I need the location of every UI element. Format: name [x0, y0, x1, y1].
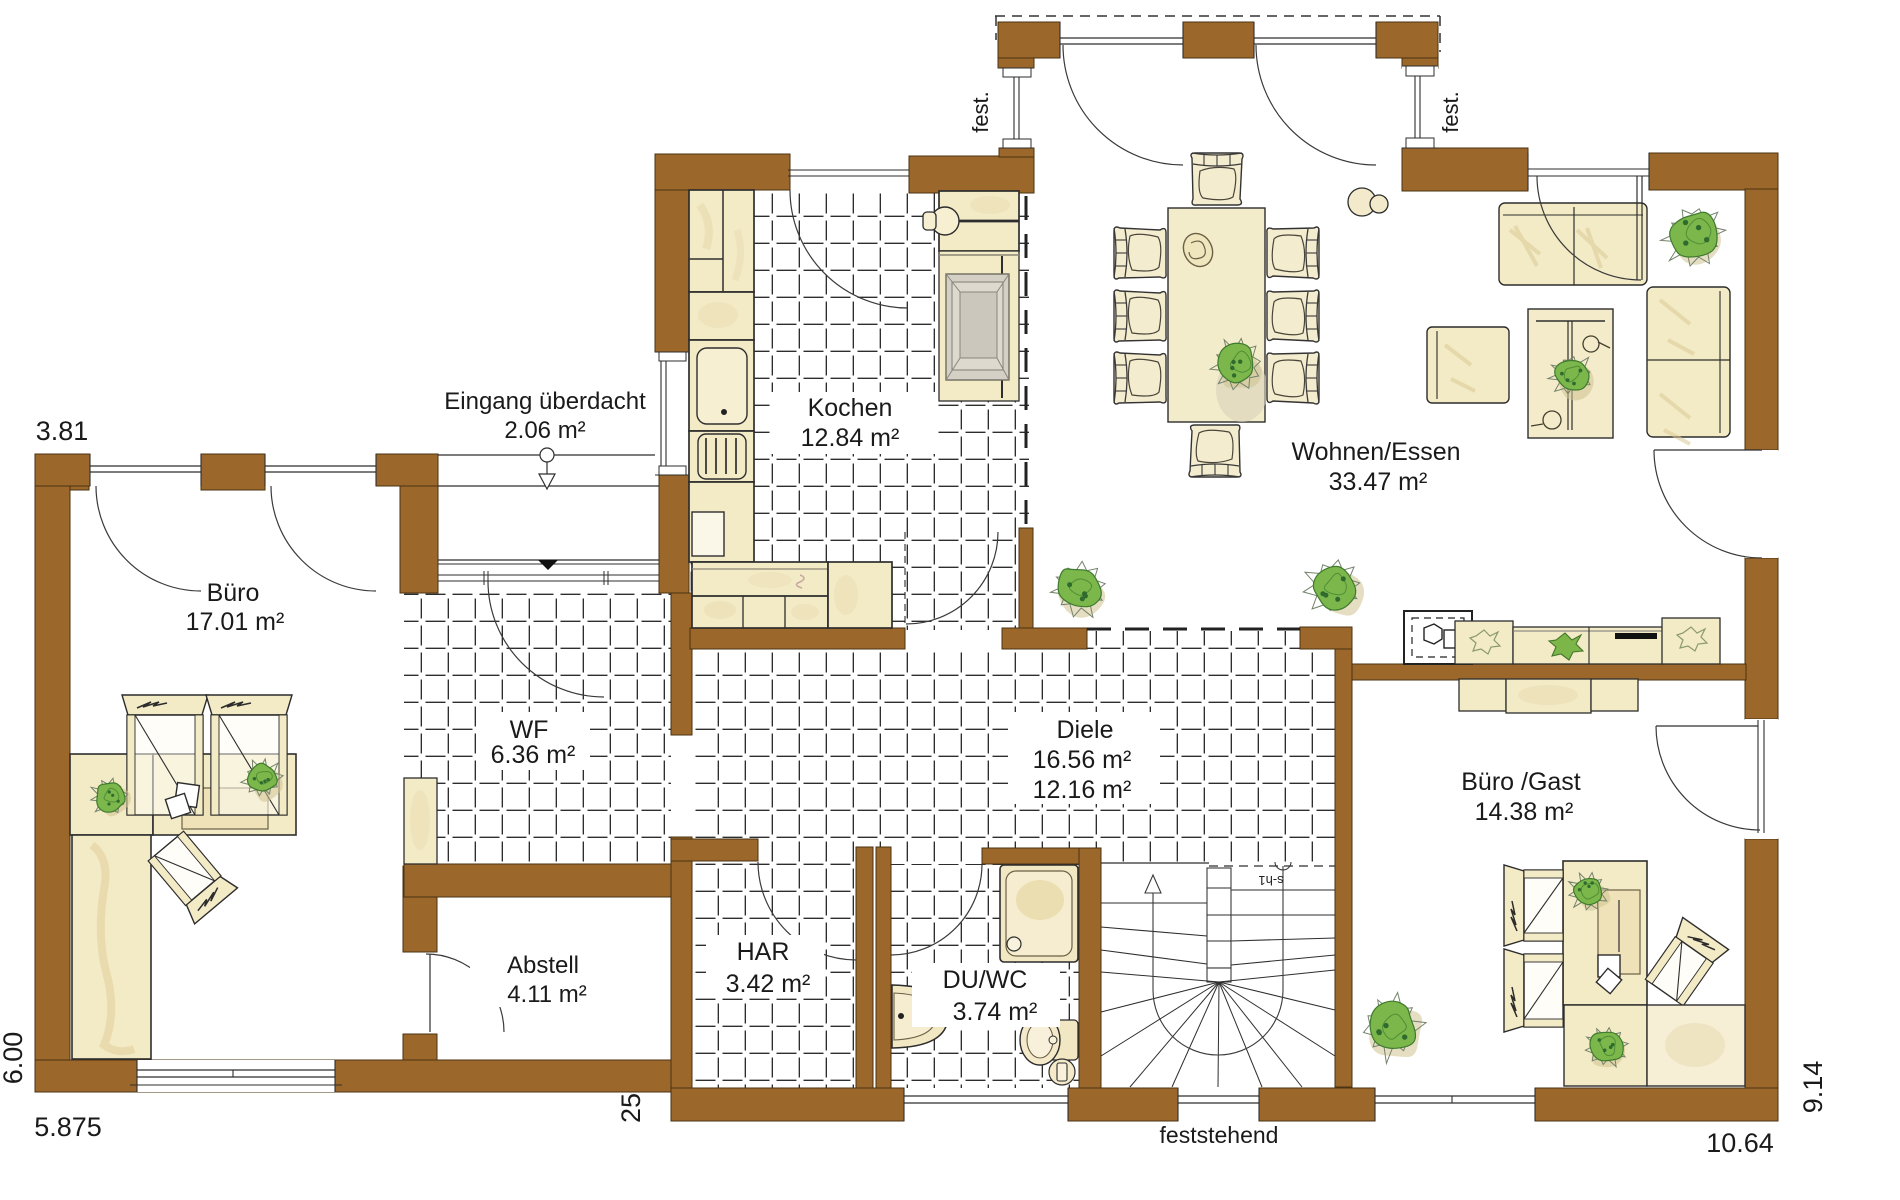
- svg-text:WF: WF: [510, 716, 549, 744]
- svg-text:Abstell: Abstell: [507, 952, 579, 979]
- svg-text:fest.: fest.: [1438, 91, 1463, 133]
- svg-text:16.56 m²: 16.56 m²: [1033, 746, 1132, 774]
- svg-text:14.38 m²: 14.38 m²: [1475, 798, 1574, 826]
- svg-text:feststehend: feststehend: [1160, 1122, 1279, 1148]
- svg-text:s-h1: s-h1: [1258, 873, 1283, 888]
- svg-text:3.74 m²: 3.74 m²: [953, 998, 1038, 1026]
- svg-text:9.14: 9.14: [1798, 1061, 1828, 1114]
- svg-text:HAR: HAR: [737, 938, 790, 966]
- svg-text:2.06 m²: 2.06 m²: [504, 417, 585, 444]
- svg-text:DU/WC: DU/WC: [943, 966, 1028, 994]
- svg-text:fest.: fest.: [968, 91, 993, 133]
- svg-text:10.64: 10.64: [1706, 1128, 1774, 1158]
- svg-text:17.01 m²: 17.01 m²: [186, 608, 285, 636]
- svg-text:3.81: 3.81: [36, 416, 89, 446]
- svg-text:Kochen: Kochen: [808, 394, 893, 422]
- svg-text:3.42 m²: 3.42 m²: [726, 970, 811, 998]
- svg-text:Büro /Gast: Büro /Gast: [1461, 768, 1581, 796]
- svg-text:5.875: 5.875: [34, 1112, 102, 1142]
- svg-text:6.00: 6.00: [0, 1032, 28, 1085]
- svg-text:Büro: Büro: [207, 579, 260, 607]
- svg-text:12.16 m²: 12.16 m²: [1033, 776, 1132, 804]
- svg-text:Eingang überdacht: Eingang überdacht: [444, 388, 646, 415]
- svg-text:4.11 m²: 4.11 m²: [507, 981, 587, 1008]
- svg-text:6.36 m²: 6.36 m²: [491, 741, 576, 769]
- svg-text:33.47 m²: 33.47 m²: [1329, 468, 1428, 496]
- svg-text:Wohnen/Essen: Wohnen/Essen: [1291, 438, 1460, 466]
- svg-text:25: 25: [616, 1093, 646, 1123]
- svg-text:12.84 m²: 12.84 m²: [801, 424, 900, 452]
- svg-text:Diele: Diele: [1057, 716, 1114, 744]
